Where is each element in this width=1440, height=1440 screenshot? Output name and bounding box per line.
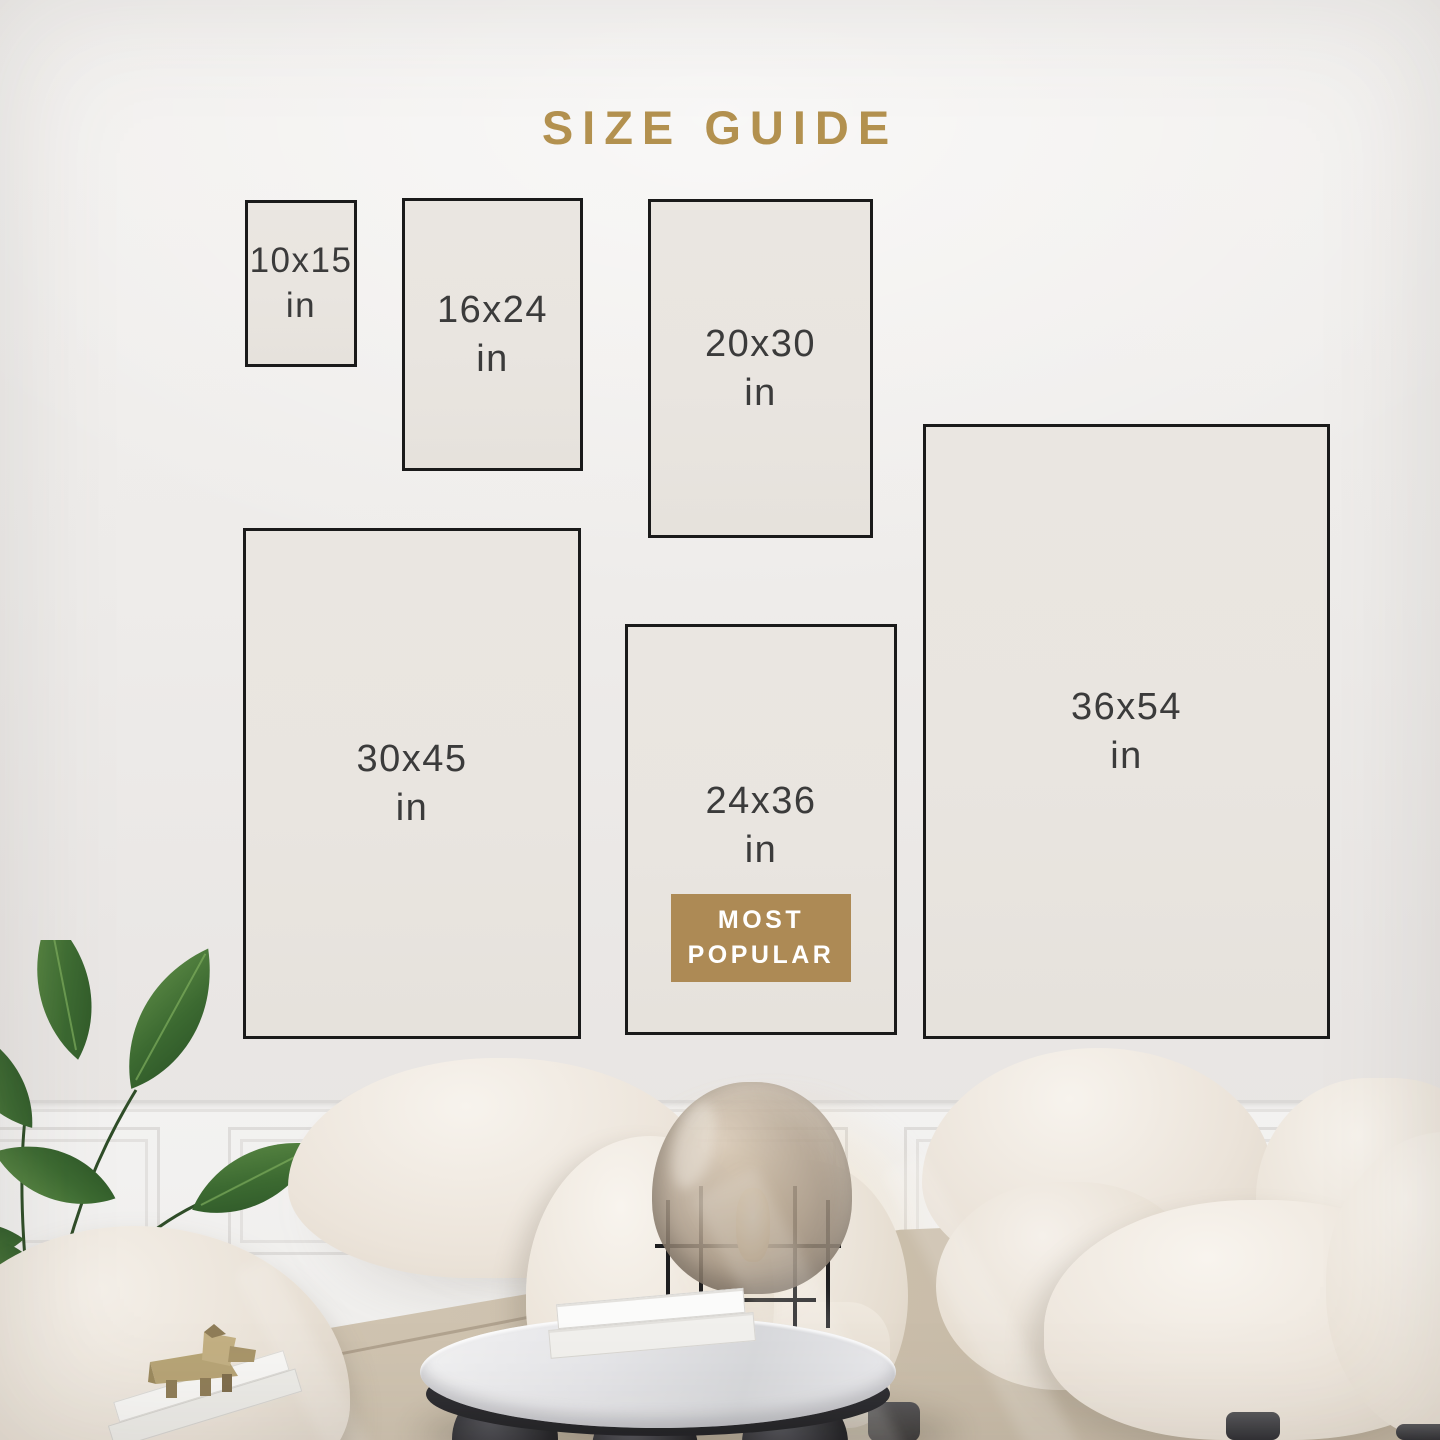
badge-line-2: POPULAR xyxy=(688,938,835,973)
size-box-24x36: 24x36 in MOST POPULAR xyxy=(625,624,897,1035)
size-unit: in xyxy=(745,826,778,875)
size-box-36x54: 36x54 in xyxy=(923,424,1330,1039)
badge-line-1: MOST xyxy=(688,903,835,938)
size-unit: in xyxy=(476,335,509,384)
dog-sculpture xyxy=(138,1322,278,1408)
size-unit: in xyxy=(1110,732,1143,781)
size-label: 20x30 xyxy=(705,320,816,369)
lamp-glass xyxy=(652,1082,852,1294)
sofa-foot xyxy=(1226,1412,1280,1440)
size-label: 10x15 xyxy=(250,239,353,284)
size-box-10x15: 10x15 in xyxy=(245,200,357,367)
size-unit: in xyxy=(286,284,316,329)
size-label: 30x45 xyxy=(356,735,467,784)
sofa-foot xyxy=(1396,1424,1440,1440)
size-box-20x30: 20x30 in xyxy=(648,199,873,538)
size-label: 24x36 xyxy=(705,777,816,826)
size-guide-poster: SIZE GUIDE 10x15 in 16x24 in 20x30 in 30… xyxy=(0,0,1440,1440)
page-title: SIZE GUIDE xyxy=(0,100,1440,155)
size-box-16x24: 16x24 in xyxy=(402,198,583,471)
size-unit: in xyxy=(396,784,429,833)
most-popular-badge: MOST POPULAR xyxy=(671,894,852,982)
size-label: 16x24 xyxy=(437,286,548,335)
size-box-30x45: 30x45 in xyxy=(243,528,581,1039)
size-unit: in xyxy=(744,369,777,418)
size-label: 36x54 xyxy=(1071,683,1182,732)
